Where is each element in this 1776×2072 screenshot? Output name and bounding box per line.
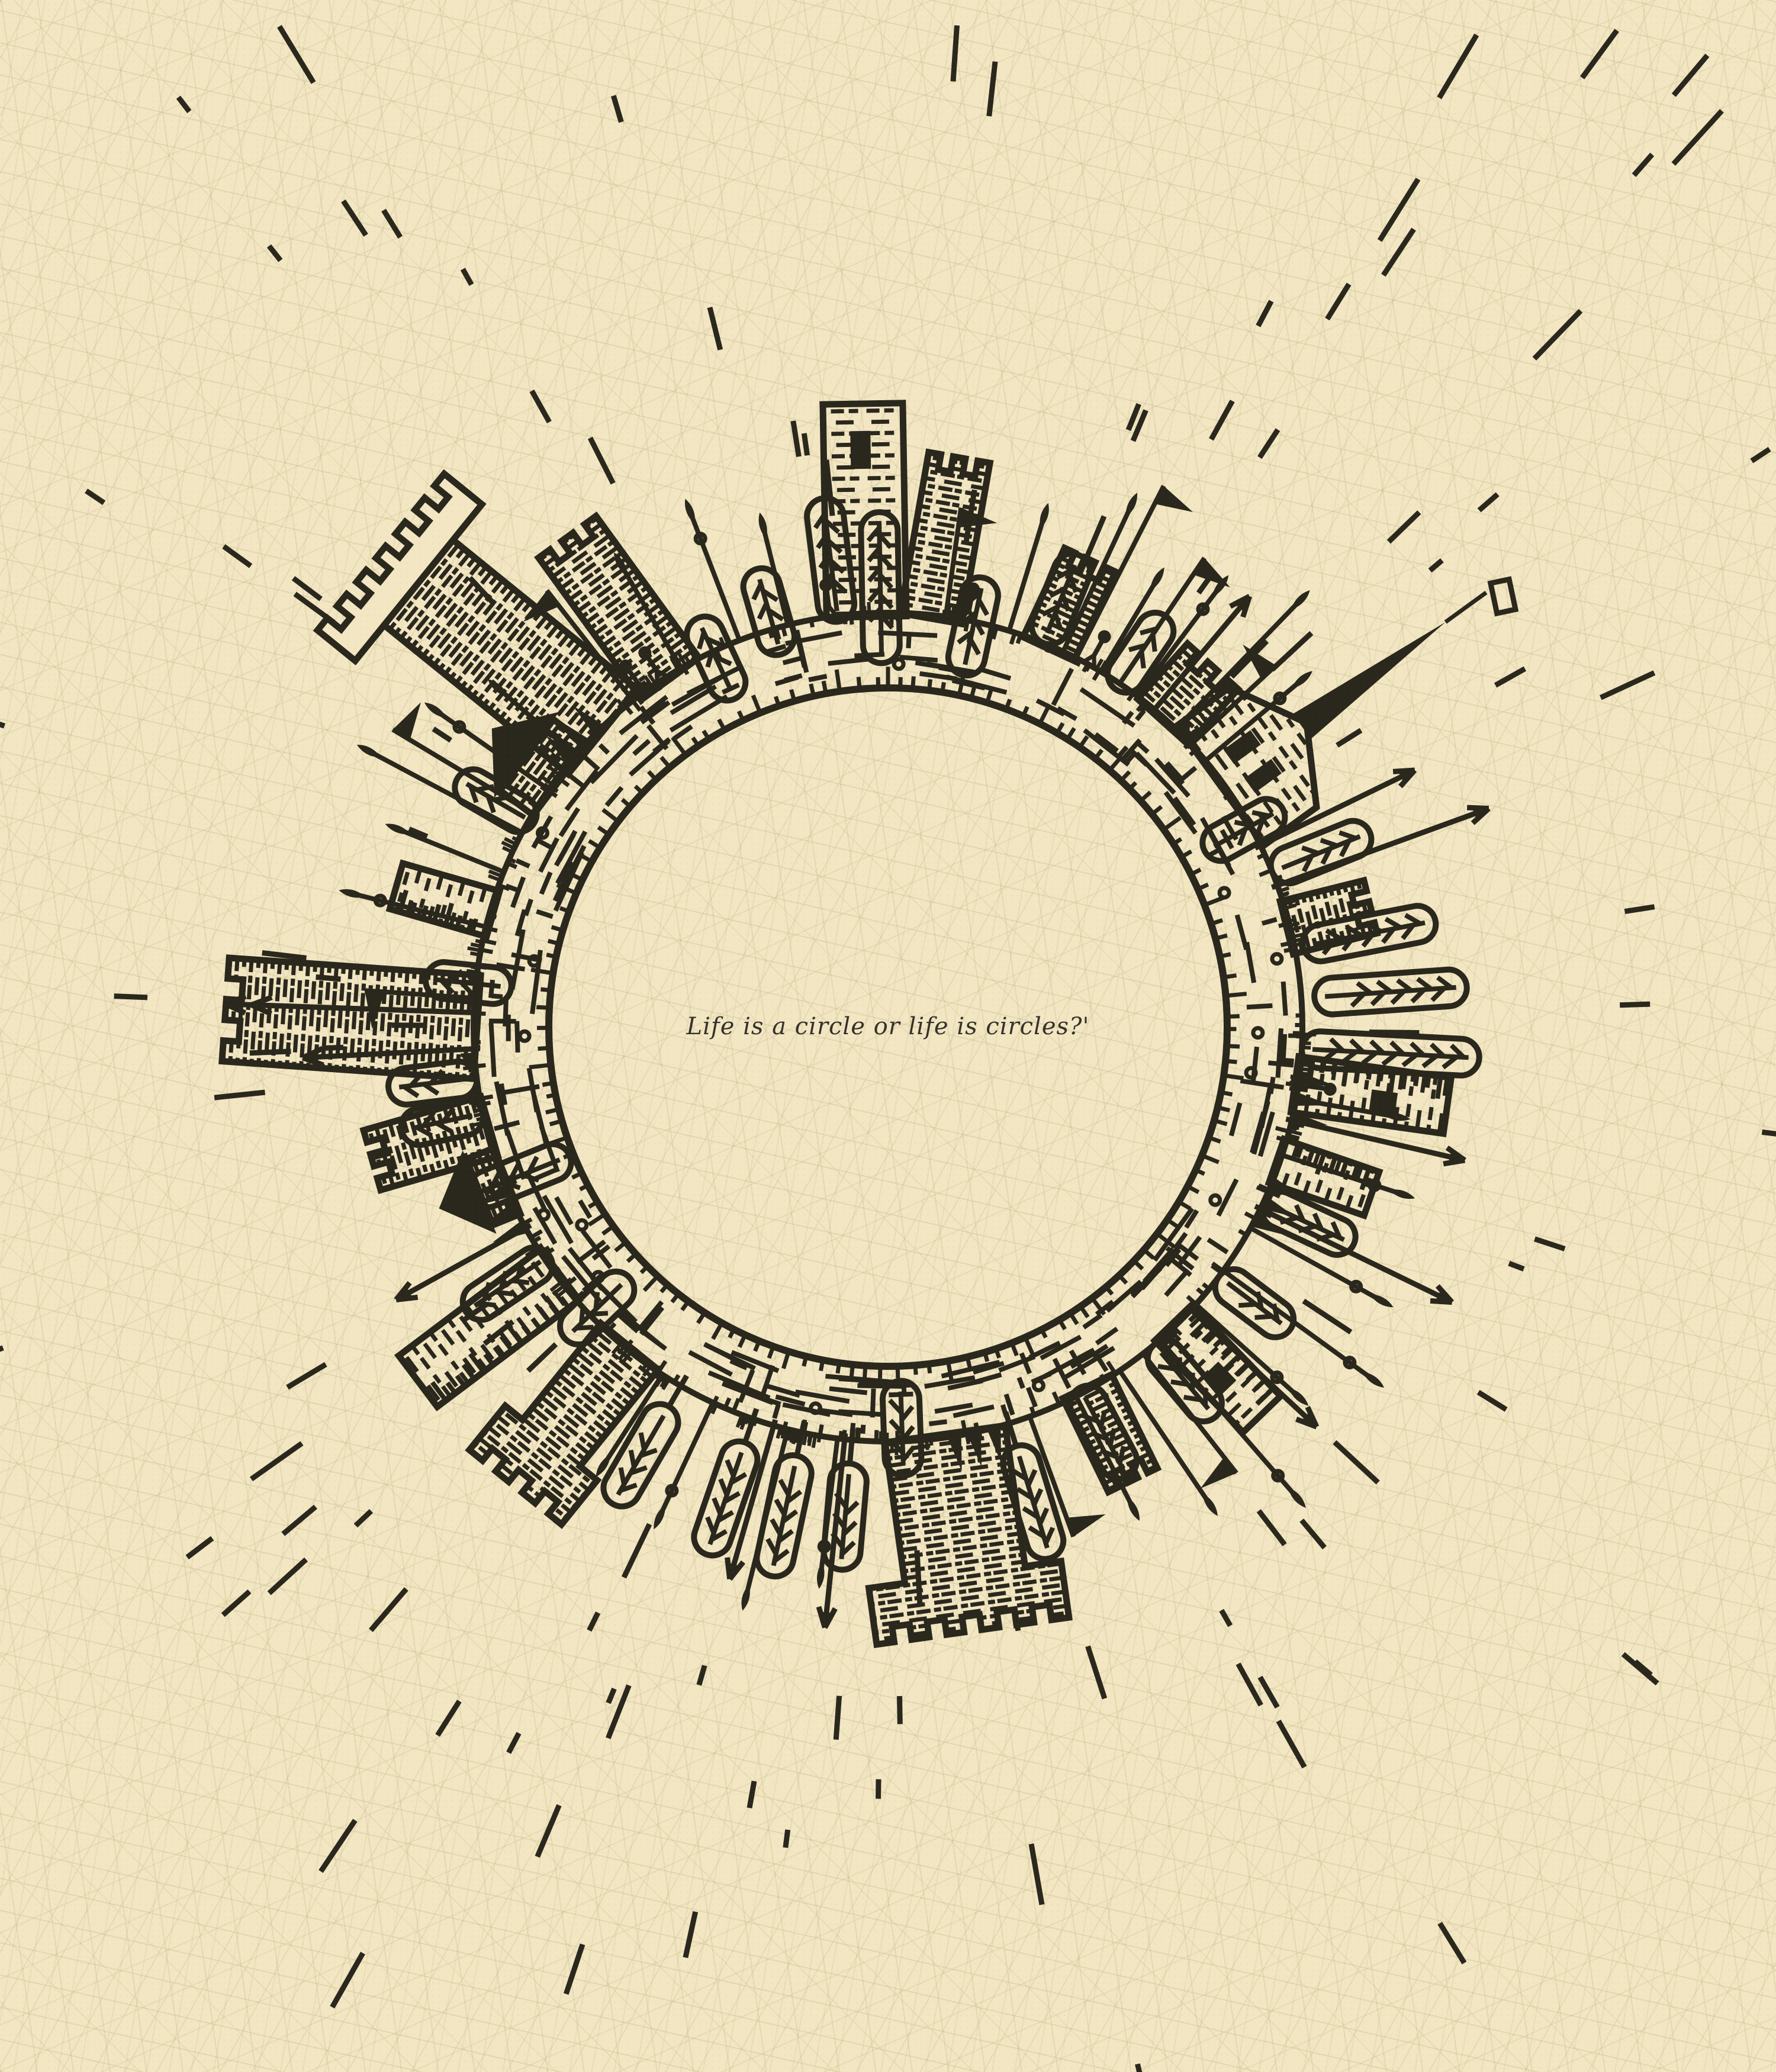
center-quote: Life is a circle or life is circles?'	[687, 1013, 1090, 1040]
